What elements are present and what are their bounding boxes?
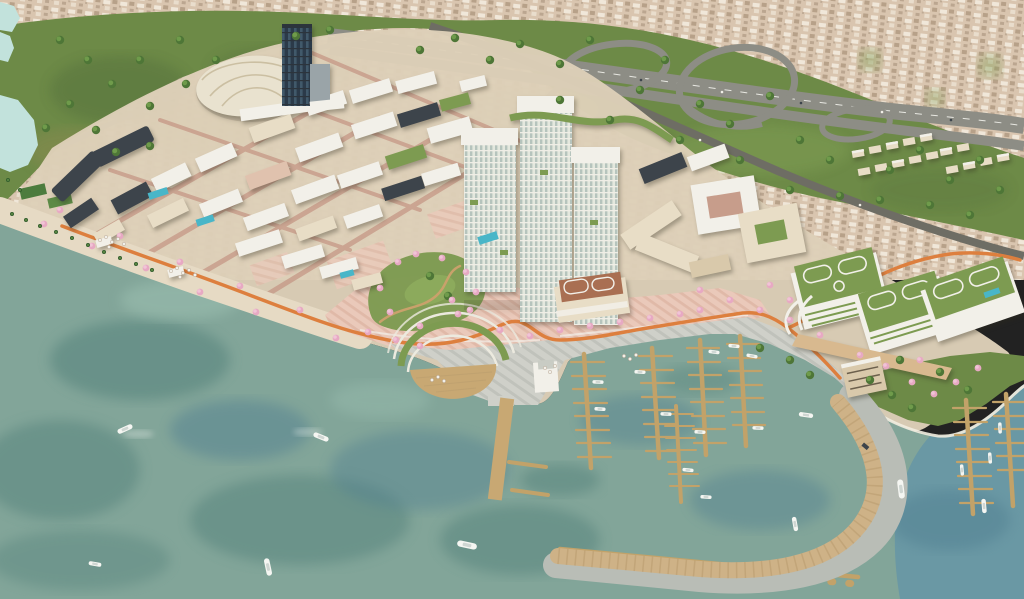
boat [694, 430, 705, 434]
aerial-rendering: Aerial rendering of a waterfront mixed-u… [0, 0, 1024, 599]
boat [660, 412, 671, 416]
boat [998, 422, 1002, 433]
city-park-patch [978, 54, 1002, 78]
masterplan-rendering-canvas: Aerial rendering of a waterfront mixed-u… [0, 0, 1024, 599]
city-park-patch [859, 49, 881, 71]
boat [752, 426, 763, 430]
city-park-patch [926, 89, 944, 107]
boat [634, 370, 645, 374]
boat-wake [122, 430, 154, 438]
boat [592, 380, 603, 384]
